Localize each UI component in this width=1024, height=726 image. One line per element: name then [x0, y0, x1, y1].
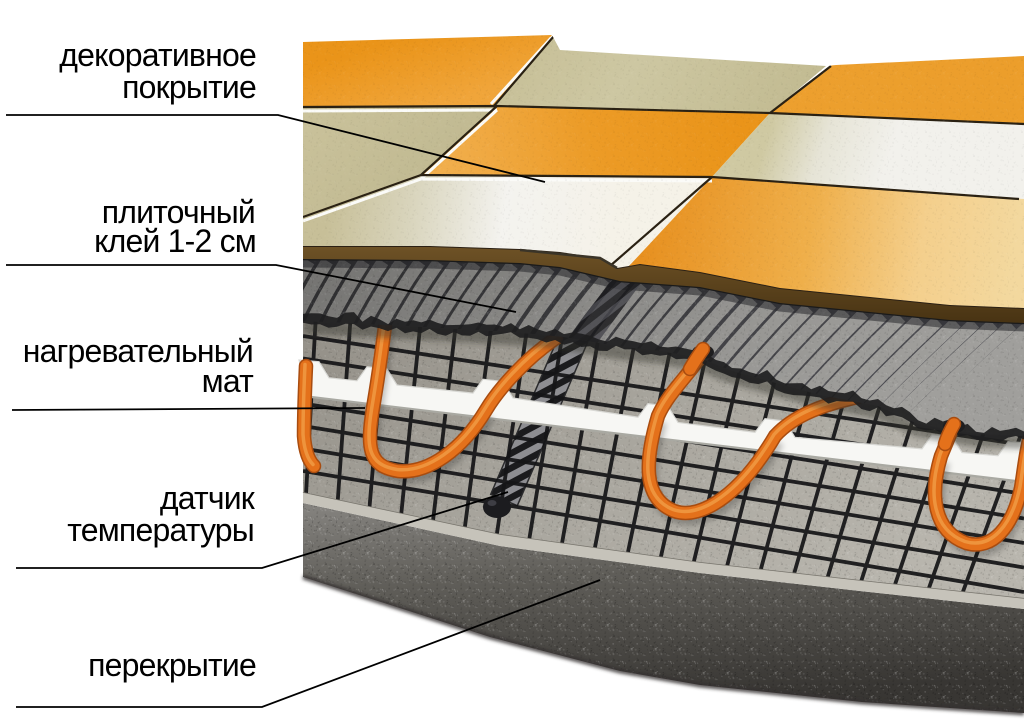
svg-text:датчик: датчик: [160, 480, 256, 516]
svg-text:клей 1-2 см: клей 1-2 см: [94, 223, 256, 259]
svg-text:температуры: температуры: [67, 512, 254, 548]
svg-text:декоративное: декоративное: [59, 37, 256, 73]
svg-text:перекрытие: перекрытие: [88, 647, 256, 683]
svg-text:мат: мат: [202, 363, 254, 399]
svg-text:покрытие: покрытие: [122, 69, 256, 105]
